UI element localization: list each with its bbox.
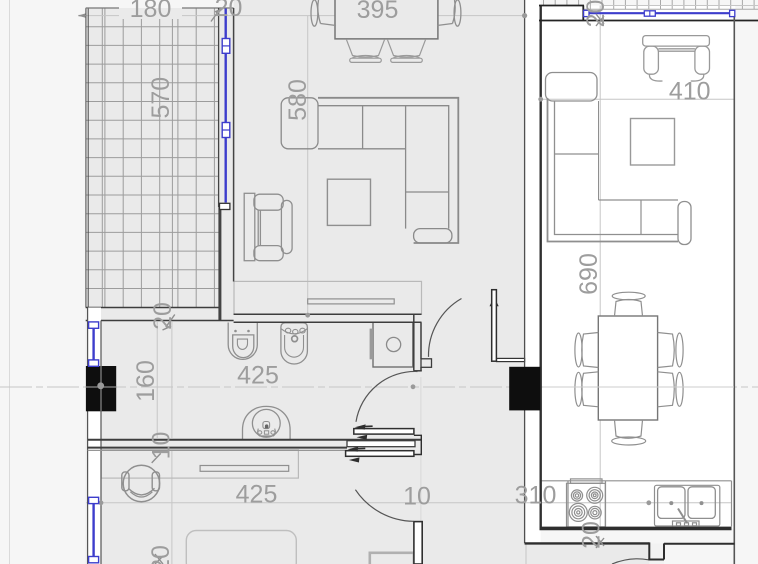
svg-text:570: 570 bbox=[147, 77, 175, 119]
svg-text:395: 395 bbox=[357, 0, 399, 24]
svg-text:180: 180 bbox=[130, 0, 172, 23]
svg-text:310: 310 bbox=[515, 482, 557, 510]
svg-text:20: 20 bbox=[147, 545, 175, 564]
svg-text:20: 20 bbox=[582, 0, 610, 27]
svg-text:690: 690 bbox=[575, 253, 603, 295]
svg-text:20: 20 bbox=[149, 302, 177, 330]
svg-text:10: 10 bbox=[148, 432, 176, 460]
svg-text:160: 160 bbox=[132, 360, 160, 402]
svg-text:10: 10 bbox=[403, 483, 431, 511]
svg-text:425: 425 bbox=[237, 362, 279, 390]
svg-text:425: 425 bbox=[236, 481, 278, 509]
svg-text:410: 410 bbox=[669, 78, 711, 106]
svg-text:20: 20 bbox=[215, 0, 243, 22]
svg-text:580: 580 bbox=[284, 79, 312, 121]
svg-text:20: 20 bbox=[578, 521, 606, 549]
